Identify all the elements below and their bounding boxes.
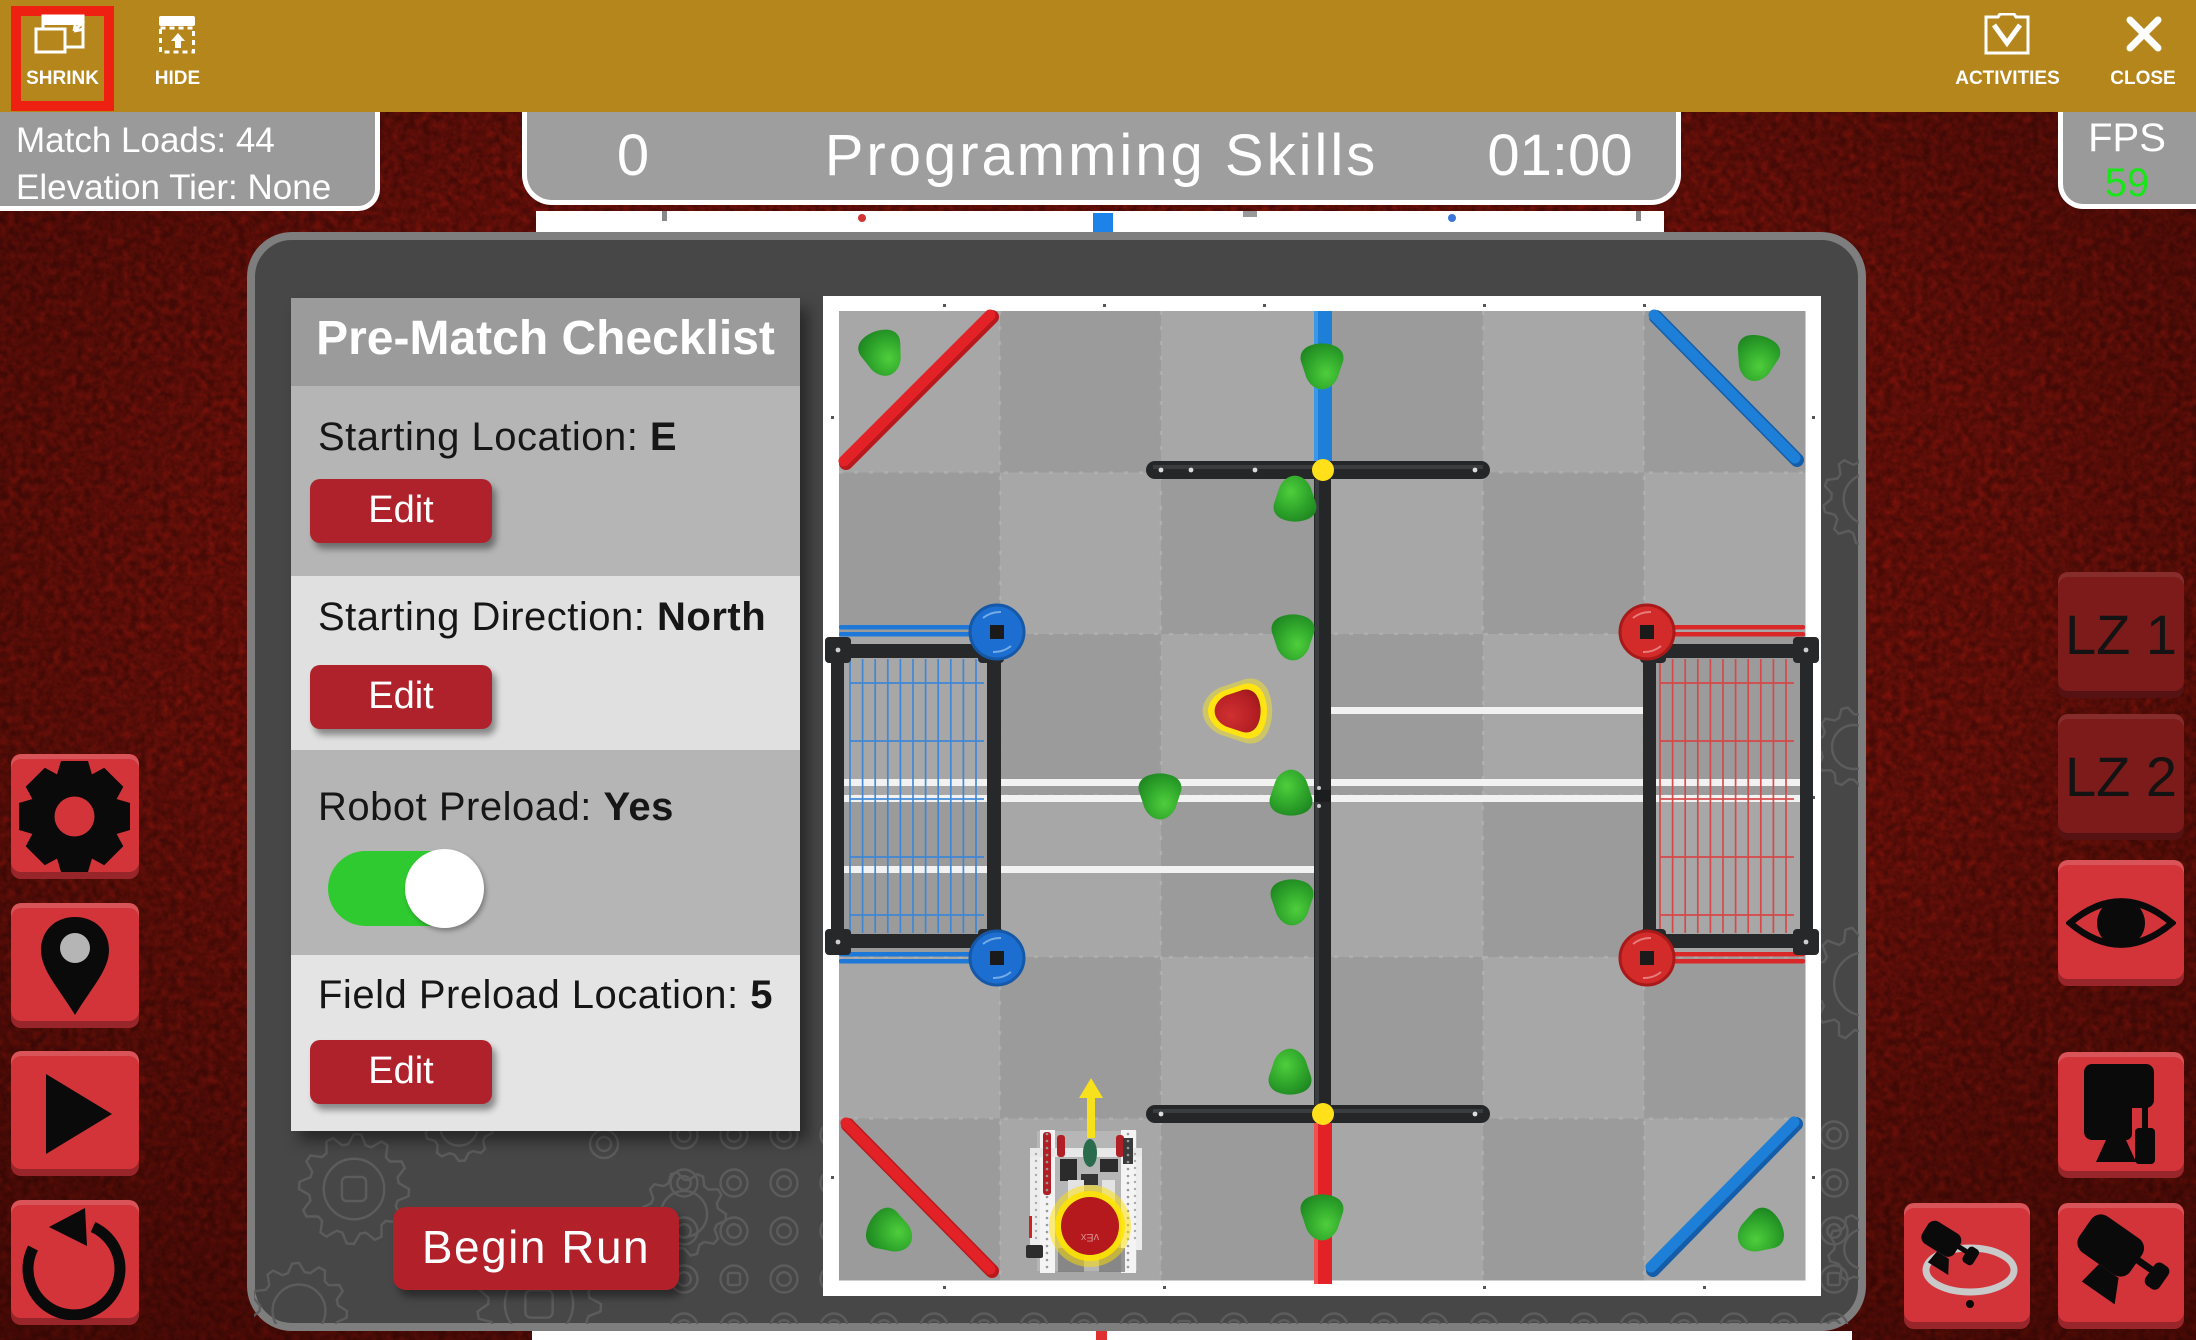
svg-text:vEx: vEx [1080,1231,1099,1243]
